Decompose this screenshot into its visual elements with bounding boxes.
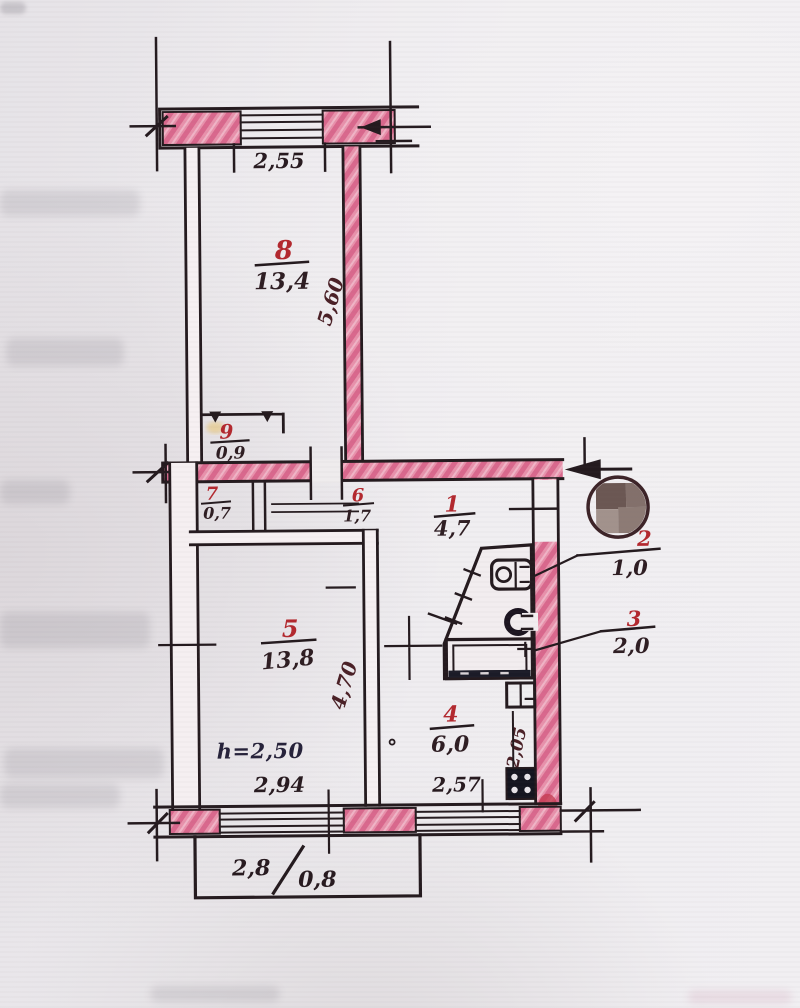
ceiling-height-label: h=2,50: [217, 738, 304, 764]
scanned-floor-plan-page: 2,55 8 13,4 5,60 9 0,9: [0, 0, 800, 1008]
dim-balcony-length: 2,8: [231, 855, 271, 881]
dim-balcony-width: 0,8: [298, 867, 337, 893]
room9-outline: [203, 411, 283, 434]
dim-top-window: 2,55: [252, 148, 304, 173]
wall-bottom-windows: [155, 804, 561, 838]
room4-fraction-line: [431, 725, 473, 728]
kitchen-sink-fixture: [507, 683, 535, 707]
room5-fraction-line: [262, 640, 315, 643]
dim-kitchen-recess: 2,05: [503, 726, 531, 772]
room1-area: 4,7: [434, 515, 471, 540]
room9-area: 0,9: [216, 443, 246, 463]
room8-area: 13,4: [254, 268, 310, 295]
redacted-stamp: [588, 477, 651, 538]
dim-room5-depth: 4,70: [325, 659, 362, 713]
floor-plan-drawing: 2,55 8 13,4 5,60 9 0,9: [0, 0, 800, 1008]
room2-area: 1,0: [611, 555, 648, 580]
gas-stove-fixture: [506, 768, 535, 799]
room8-fraction-line: [256, 262, 308, 265]
room3-area: 2,0: [612, 633, 650, 658]
dim-room5-width: 2,94: [253, 772, 305, 797]
room9-number: 9: [219, 419, 233, 443]
dim-kitchen-width: 2,57: [431, 772, 481, 796]
room4-number: 4: [443, 701, 459, 727]
room9-fraction-line: [211, 440, 248, 442]
room7-area: 0,7: [203, 503, 231, 522]
room5-area: 13,8: [260, 645, 316, 676]
room5-number: 5: [282, 614, 299, 643]
bathroom-block: [428, 545, 538, 679]
room8-number: 8: [274, 236, 293, 266]
room4-area: 6,0: [431, 731, 470, 757]
room6-area: 1,7: [343, 506, 371, 525]
room3-number: 3: [627, 606, 642, 631]
room7-number: 7: [206, 484, 219, 505]
